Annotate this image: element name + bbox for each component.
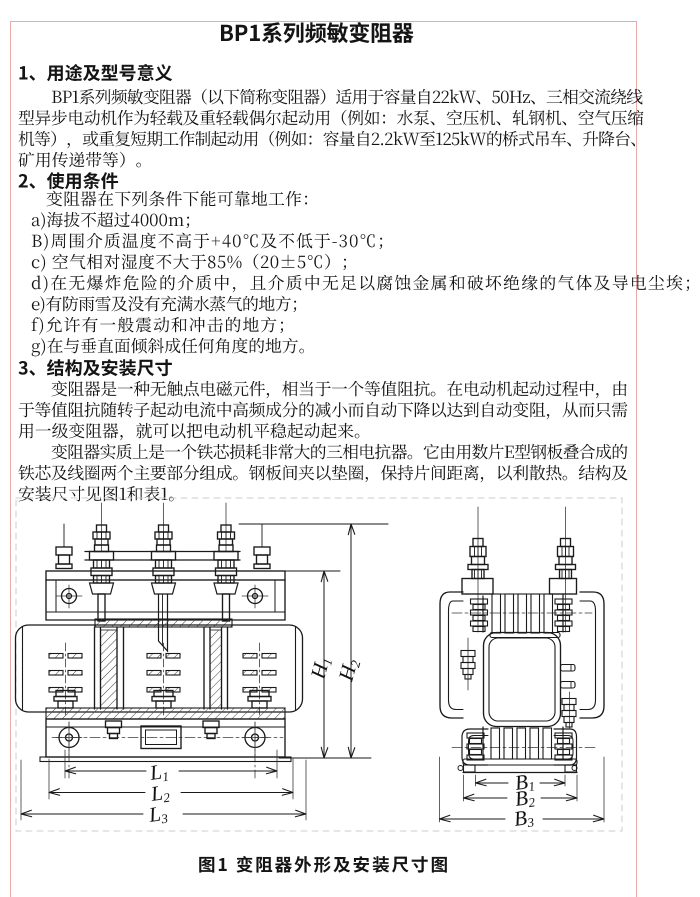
svg-text:H1: H1 xyxy=(305,654,335,682)
svg-text:H2: H2 xyxy=(333,656,363,685)
